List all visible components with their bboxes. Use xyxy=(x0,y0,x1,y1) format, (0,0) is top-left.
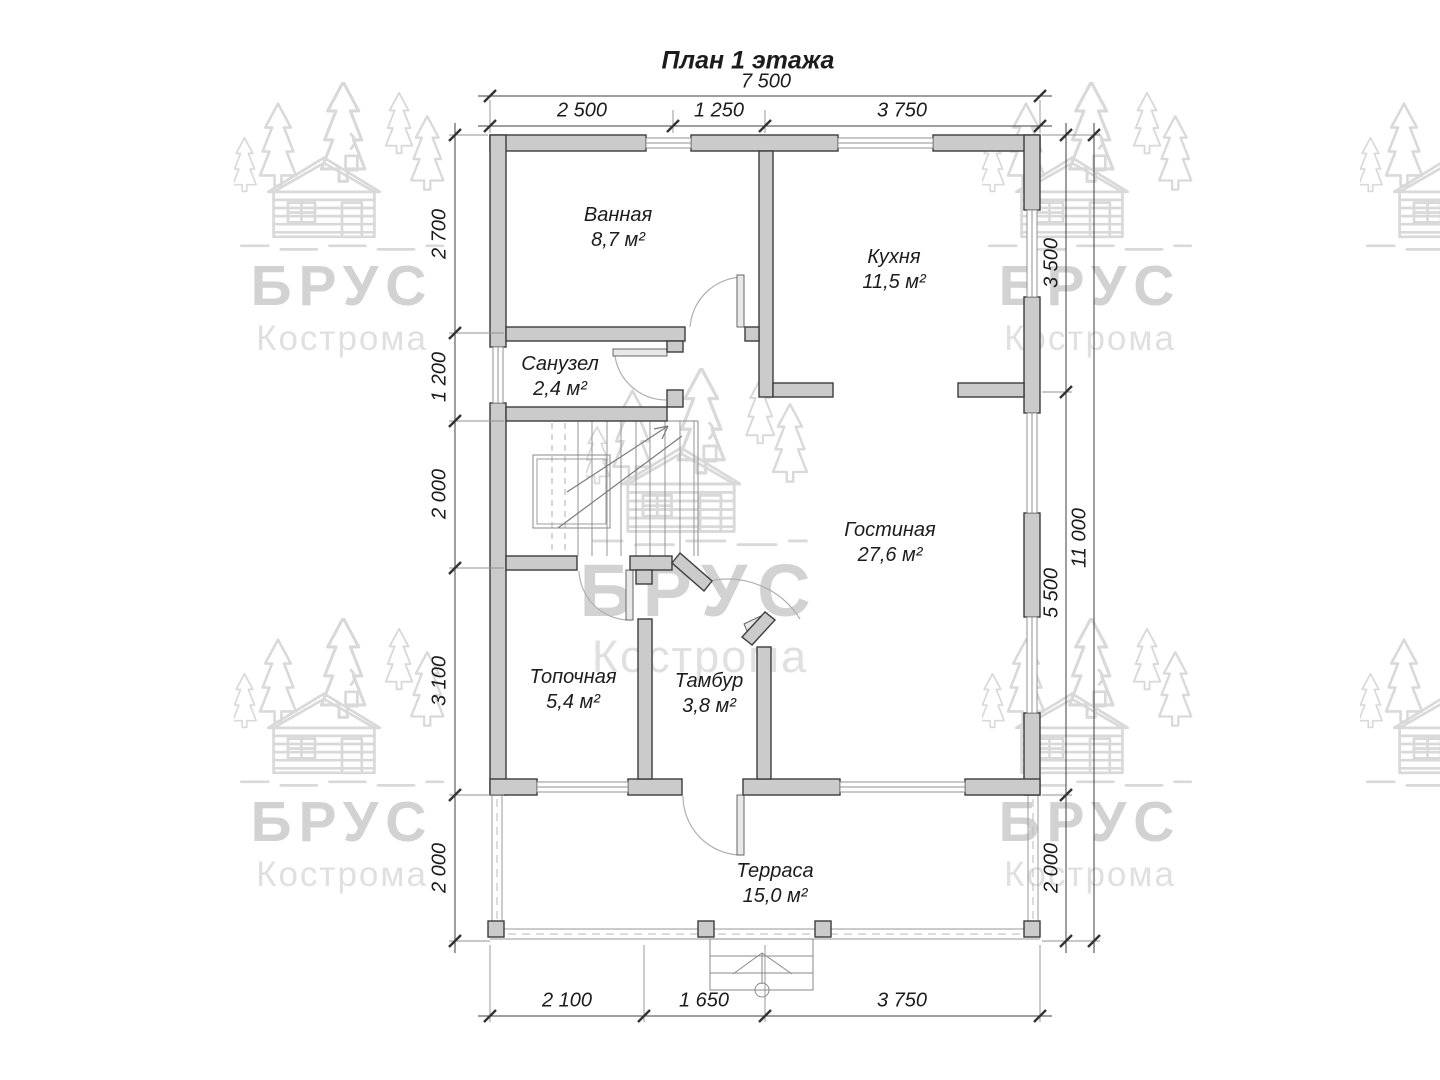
dim-top-seg-1: 2 500 xyxy=(557,100,607,123)
bathroom-door-leaf xyxy=(737,275,744,327)
wall xyxy=(506,407,667,421)
room-area: 2,4 м² xyxy=(521,377,599,402)
room-label-kitchen: Кухня 11,5 м² xyxy=(862,245,925,295)
dim-bottom-seg-3: 3 750 xyxy=(877,990,927,1013)
dim-top-seg-2: 1 250 xyxy=(694,100,744,123)
wall xyxy=(636,570,652,584)
dim-left-seg-4: 3 100 xyxy=(429,656,452,706)
walls xyxy=(488,135,1040,937)
wall xyxy=(490,403,506,795)
wall xyxy=(1024,513,1040,617)
wall xyxy=(667,341,683,352)
wall xyxy=(743,779,840,795)
room-name: Гостиная xyxy=(844,518,935,543)
dim-left-seg-3: 2 000 xyxy=(429,469,452,519)
wall xyxy=(628,779,682,795)
room-label-vestibule: Тамбур 3,8 м² xyxy=(675,669,744,719)
room-label-bathroom: Ванная 8,7 м² xyxy=(584,203,652,253)
wc-door-arc xyxy=(615,356,666,400)
dim-left-seg-2: 1 200 xyxy=(429,352,452,402)
wall xyxy=(773,383,833,397)
room-area: 5,4 м² xyxy=(529,690,616,715)
room-name: Ванная xyxy=(584,203,652,228)
wall xyxy=(490,135,506,347)
room-label-boiler: Топочная 5,4 м² xyxy=(529,665,616,715)
wall xyxy=(506,327,685,341)
living-door-arc xyxy=(710,579,800,619)
dim-left-seg-5: 2 000 xyxy=(429,843,452,893)
room-area: 3,8 м² xyxy=(675,694,744,719)
wall xyxy=(667,390,683,407)
wall xyxy=(745,327,759,341)
wall xyxy=(630,556,672,570)
entrance-steps xyxy=(710,939,813,997)
dim-top-seg-3: 3 750 xyxy=(877,100,927,123)
room-name: Санузел xyxy=(521,352,599,377)
dim-right-total: 11 000 xyxy=(1069,508,1092,568)
terrace-post xyxy=(488,921,504,937)
boiler-door-arc xyxy=(579,571,628,620)
room-name: Кухня xyxy=(862,245,925,270)
room-label-wc: Санузел 2,4 м² xyxy=(521,352,599,402)
room-label-terrace: Терраса 15,0 м² xyxy=(736,859,813,909)
wc-door-leaf xyxy=(613,349,667,356)
dim-right-seg-3: 2 000 xyxy=(1041,843,1064,893)
wall xyxy=(490,779,537,795)
staircase xyxy=(506,421,698,556)
wall xyxy=(759,151,773,397)
wall xyxy=(958,383,1024,397)
floor-plan-drawing xyxy=(0,0,1440,1080)
room-area: 15,0 м² xyxy=(736,884,813,909)
terrace-post xyxy=(1024,921,1040,937)
dim-bottom-seg-2: 1 650 xyxy=(679,990,729,1013)
wall xyxy=(638,619,652,779)
wall xyxy=(757,647,771,779)
wall xyxy=(490,135,646,151)
bathroom-door-arc xyxy=(690,277,744,327)
room-name: Тамбур xyxy=(675,669,744,694)
floor-plan-page: БРУС Кострома БРУС Кострома БРУС Костром… xyxy=(0,0,1440,1080)
dim-left-seg-1: 2 700 xyxy=(429,209,452,259)
front-door-arc xyxy=(683,796,740,855)
wall xyxy=(1024,297,1040,413)
room-area: 27,6 м² xyxy=(844,543,935,568)
wall xyxy=(691,135,838,151)
dim-right-seg-2: 5 500 xyxy=(1041,568,1064,618)
terrace-post xyxy=(698,921,714,937)
room-name: Терраса xyxy=(736,859,813,884)
wall xyxy=(965,779,1040,795)
terrace-post xyxy=(815,921,831,937)
boiler-door-leaf xyxy=(626,570,633,620)
wall xyxy=(1024,135,1040,210)
dim-bottom-seg-1: 2 100 xyxy=(542,990,592,1013)
wall xyxy=(506,556,577,570)
front-door-leaf xyxy=(737,795,744,855)
room-area: 8,7 м² xyxy=(584,228,652,253)
room-area: 11,5 м² xyxy=(862,270,925,295)
room-label-living: Гостиная 27,6 м² xyxy=(844,518,935,568)
diagonal-wall xyxy=(672,553,712,591)
dim-top-total: 7 500 xyxy=(741,71,791,94)
room-name: Топочная xyxy=(529,665,616,690)
dim-right-seg-1: 3 500 xyxy=(1041,238,1064,288)
